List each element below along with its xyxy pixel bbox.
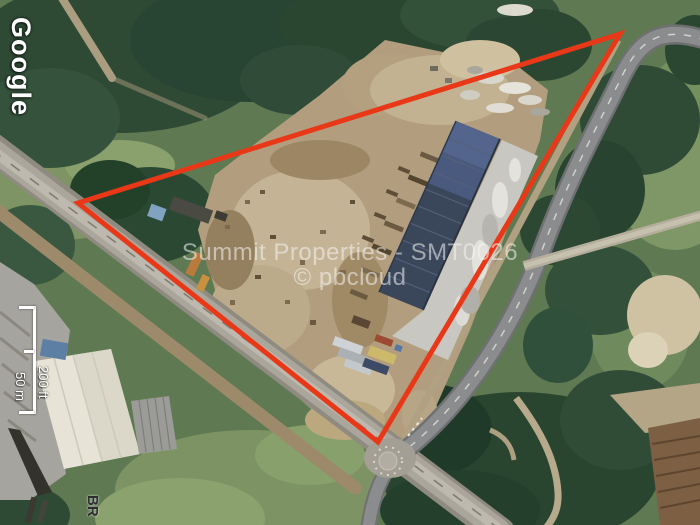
scale-tick bbox=[19, 411, 34, 414]
scale-tick bbox=[24, 350, 34, 353]
satellite-imagery[interactable] bbox=[0, 0, 700, 525]
map-canvas[interactable]: Google 200 ft 50 m Summit Properties - S… bbox=[0, 0, 700, 525]
scale-tick bbox=[19, 306, 34, 309]
google-logo[interactable]: Google bbox=[5, 17, 36, 116]
street-label: BR bbox=[84, 495, 101, 517]
scale-label-imperial: 200 ft bbox=[36, 366, 51, 399]
scale-label-metric: 50 m bbox=[13, 372, 28, 401]
